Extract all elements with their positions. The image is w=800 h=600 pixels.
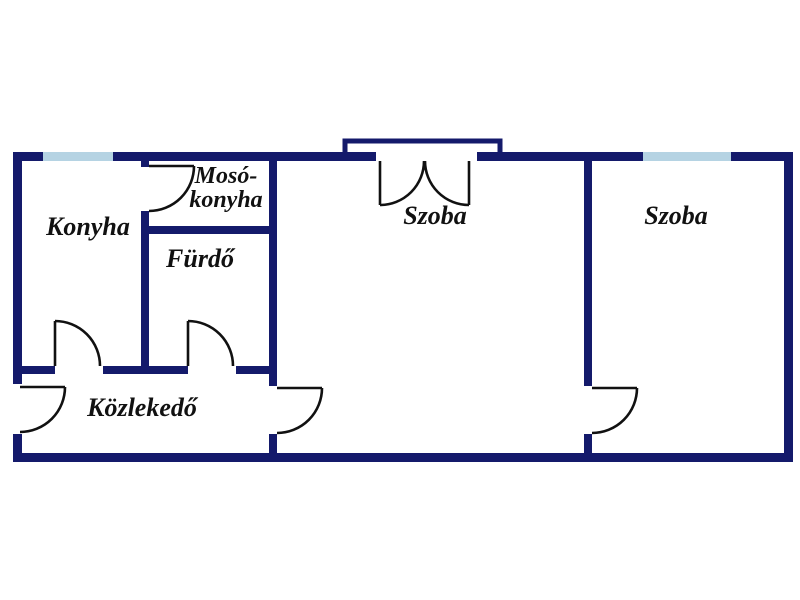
konyha-window — [43, 152, 113, 161]
room-label-furdo: Fürdő — [166, 246, 234, 272]
wall-moso-furdo-divider — [149, 226, 269, 234]
wall-szoba-left-upper — [269, 161, 277, 386]
room-label-moso-line1: Mosó- — [189, 164, 262, 188]
wall-top-2 — [113, 152, 376, 161]
wall-top-3 — [477, 152, 643, 161]
wall-kozlekedo-top-1 — [22, 366, 55, 374]
door-arc — [149, 166, 194, 211]
wall-kozlekedo-top-3 — [236, 366, 269, 374]
szoba-to-szoba-door — [592, 388, 637, 433]
wall-konyha-divider-stub — [141, 161, 149, 167]
floorplan-drawing — [0, 0, 800, 600]
room-label-szoba-right: Szoba — [644, 203, 708, 229]
wall-right — [784, 152, 793, 462]
door-arc — [188, 321, 233, 366]
wall-szoba-szoba-upper — [584, 161, 592, 386]
konyha-door — [55, 321, 100, 366]
wall-konyha-divider — [141, 211, 149, 374]
room-label-kozlekedo: Közlekedő — [87, 395, 197, 421]
kozlekedo-to-szoba-door — [277, 388, 322, 433]
door-arc — [592, 388, 637, 433]
floorplan: Konyha Mosó- konyha Fürdő Szoba Szoba Kö… — [0, 0, 800, 600]
door-arc-left — [380, 161, 424, 205]
room-label-konyha: Konyha — [46, 214, 130, 240]
room-label-moso-konyha: Mosó- konyha — [189, 164, 262, 212]
wall-kozlekedo-top-2 — [103, 366, 188, 374]
door-arc — [20, 387, 65, 432]
room-label-szoba-middle: Szoba — [403, 203, 467, 229]
balcony-double-door — [380, 161, 469, 205]
wall-szoba-szoba-lower — [584, 434, 592, 453]
door-arc — [277, 388, 322, 433]
entry-door — [20, 387, 65, 432]
door-arc-right — [425, 161, 469, 205]
wall-top-4 — [731, 152, 793, 161]
moso-konyha-door — [149, 166, 194, 211]
door-arc — [55, 321, 100, 366]
furdo-door — [188, 321, 233, 366]
wall-left-upper — [13, 152, 22, 384]
room-label-moso-line2: konyha — [189, 188, 262, 212]
wall-bottom — [13, 453, 793, 462]
szoba-window — [643, 152, 731, 161]
wall-left-lower — [13, 434, 22, 462]
wall-szoba-left-lower — [269, 434, 277, 453]
